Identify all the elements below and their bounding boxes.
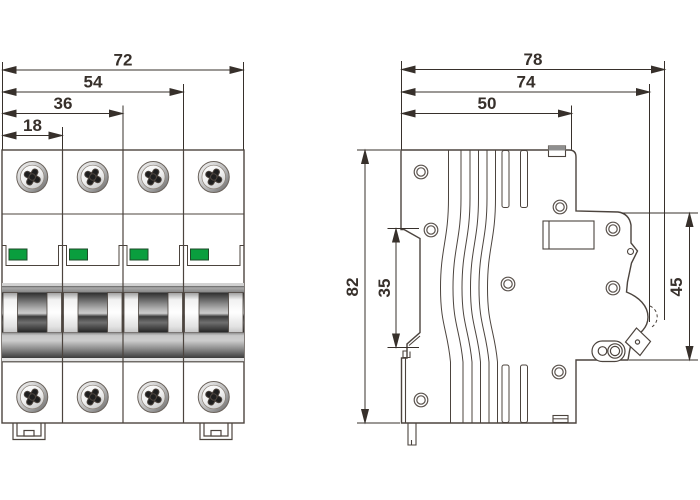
- din-rail-clip: [13, 423, 232, 440]
- screw-head: [138, 382, 169, 413]
- busbar-tab-top: [549, 146, 566, 157]
- handle-travel-arc: [650, 306, 657, 328]
- dim-label-78: 78: [524, 50, 543, 69]
- side-body-outline: [401, 150, 648, 423]
- indicator-window: [9, 249, 27, 260]
- side-view: [401, 146, 657, 445]
- dim-label-82: 82: [343, 278, 362, 297]
- screw-head: [138, 162, 169, 193]
- screw-head: [77, 382, 108, 413]
- dim-label-18: 18: [23, 116, 42, 135]
- indicator-window: [70, 249, 88, 260]
- dimension-74: 74: [402, 73, 650, 96]
- screw-head: [198, 162, 229, 193]
- mcb-outline-drawing: 72 54 36 18: [0, 0, 700, 500]
- front-dimensions: 72 54 36 18: [3, 51, 244, 150]
- screw-head: [17, 162, 48, 193]
- dim-label-45: 45: [667, 278, 686, 297]
- dim-label-54: 54: [84, 73, 103, 92]
- indicator-window: [191, 249, 209, 260]
- busbar-tab-bottom: [553, 416, 568, 423]
- indicator-window: [130, 249, 148, 260]
- dim-label-35: 35: [375, 279, 394, 298]
- dimension-78: 78: [402, 50, 665, 73]
- dim-label-74: 74: [517, 73, 536, 92]
- dimension-35: 35: [375, 229, 399, 347]
- screw-head: [77, 162, 108, 193]
- handle-lock-hole: [592, 341, 625, 362]
- label-plate: [543, 221, 594, 249]
- dim-label-36: 36: [54, 94, 73, 113]
- dim-label-72: 72: [114, 51, 133, 70]
- dimension-54: 54: [3, 73, 183, 96]
- dimension-18: 18: [3, 116, 62, 139]
- technical-drawing: 72 54 36 18: [0, 0, 700, 500]
- screw-head: [198, 382, 229, 413]
- dimension-50: 50: [402, 94, 572, 117]
- dimension-82: 82: [343, 151, 368, 423]
- dimension-72: 72: [3, 51, 243, 74]
- dimension-36: 36: [3, 94, 123, 117]
- dimension-45: 45: [667, 214, 693, 360]
- front-view: [2, 150, 244, 440]
- dim-label-50: 50: [478, 94, 497, 113]
- screw-head: [17, 382, 48, 413]
